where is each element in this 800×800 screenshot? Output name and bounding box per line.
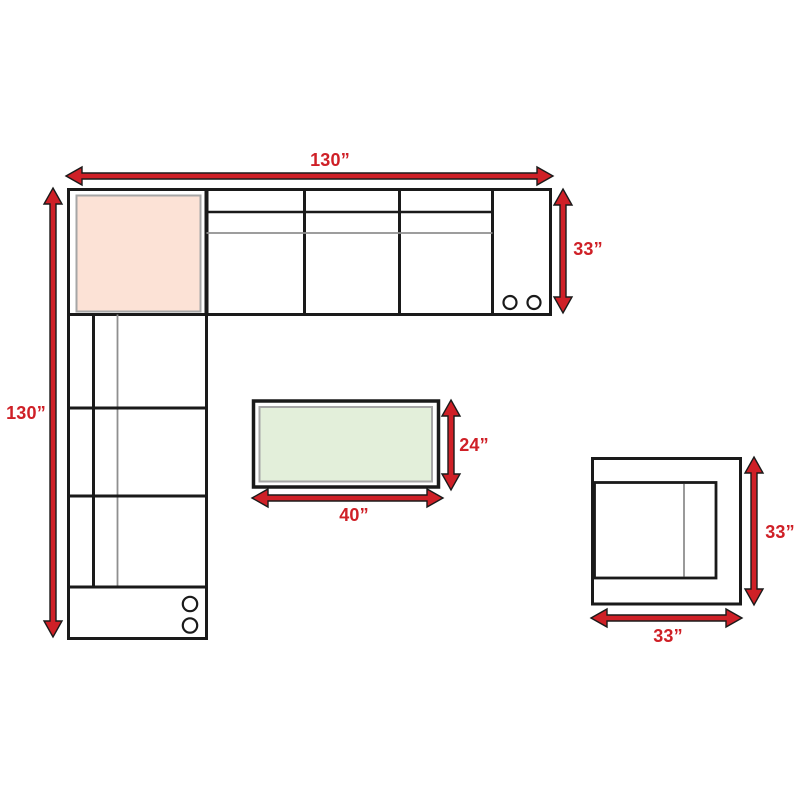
furniture-dimension-diagram: 130” 130” 33” 24” 40” 33” 33” — [0, 0, 800, 800]
chair-depth-label: 33” — [765, 522, 795, 542]
coffee-table — [254, 401, 439, 487]
table-depth-arrow — [442, 400, 460, 490]
table-depth-label: 24” — [459, 435, 489, 455]
sofa-left-outline — [69, 315, 207, 639]
chair-depth-arrow — [745, 457, 763, 605]
chair-seat — [595, 483, 717, 579]
cupholder-circle — [183, 618, 197, 632]
accent-chair — [593, 459, 741, 605]
diagram-svg: 130” 130” 33” 24” 40” 33” 33” — [0, 0, 800, 800]
cupholder-circle — [504, 296, 517, 309]
cupholder-circle — [183, 597, 197, 611]
cupholder-circle — [528, 296, 541, 309]
corner-cushion — [77, 196, 201, 312]
sectional-sofa-top-run — [69, 190, 551, 315]
sofa-depth-label: 33” — [573, 239, 603, 259]
chair-width-label: 33” — [653, 626, 683, 646]
sofa-length-arrow — [44, 188, 62, 637]
sofa-length-label: 130” — [6, 403, 46, 423]
coffee-table-top — [260, 407, 433, 482]
sectional-sofa-left-run — [69, 315, 207, 639]
chair-width-arrow — [591, 609, 742, 627]
table-width-label: 40” — [339, 505, 369, 525]
sofa-depth-arrow — [554, 189, 572, 313]
sofa-width-label: 130” — [310, 150, 350, 170]
